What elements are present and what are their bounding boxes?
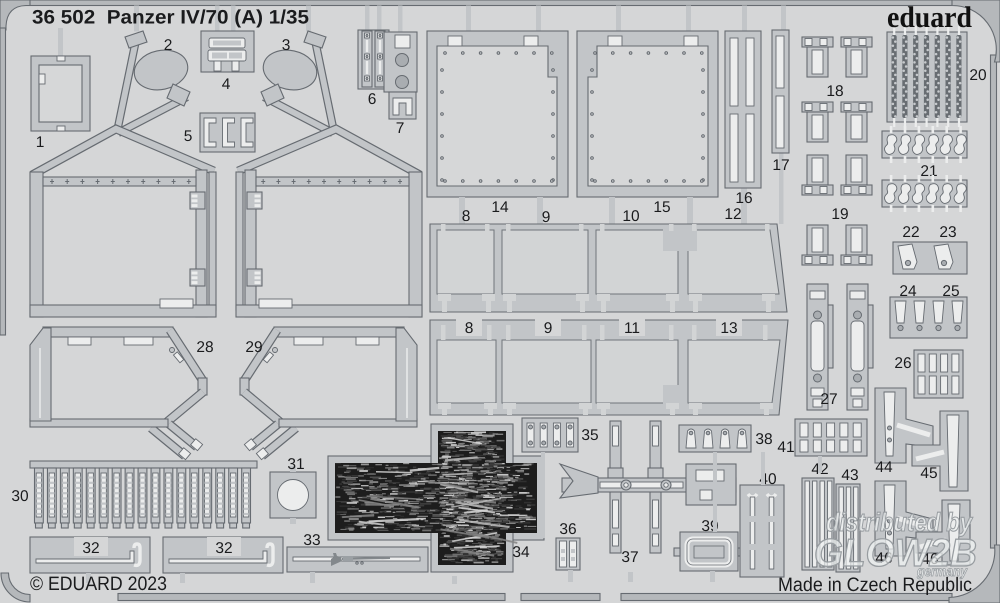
svg-text:18: 18: [826, 83, 843, 100]
svg-text:41: 41: [777, 439, 794, 456]
svg-text:21: 21: [920, 163, 937, 180]
svg-text:8: 8: [465, 320, 474, 337]
svg-text:44: 44: [875, 459, 893, 476]
svg-text:17: 17: [772, 157, 789, 174]
svg-text:32: 32: [82, 540, 99, 557]
svg-text:29: 29: [245, 339, 262, 356]
svg-text:2: 2: [164, 37, 173, 54]
svg-text:4: 4: [222, 76, 231, 93]
svg-text:27: 27: [820, 391, 837, 408]
svg-text:43: 43: [841, 467, 858, 484]
svg-text:35: 35: [581, 427, 598, 444]
svg-text:© EDUARD 2023: © EDUARD 2023: [30, 573, 167, 595]
svg-text:36: 36: [559, 521, 576, 538]
svg-text:16: 16: [735, 190, 752, 207]
svg-text:32: 32: [215, 540, 232, 557]
svg-text:9: 9: [544, 320, 553, 337]
svg-text:15: 15: [653, 199, 670, 216]
svg-text:germany: germany: [916, 563, 968, 579]
svg-text:3: 3: [282, 37, 291, 54]
svg-text:11: 11: [624, 320, 640, 337]
svg-text:38: 38: [755, 431, 772, 448]
svg-text:30: 30: [11, 488, 29, 505]
svg-text:22: 22: [902, 224, 919, 241]
svg-text:14: 14: [491, 199, 509, 216]
svg-text:26: 26: [894, 355, 911, 372]
svg-text:10: 10: [622, 208, 640, 225]
svg-text:34: 34: [512, 544, 530, 561]
svg-text:1: 1: [36, 134, 45, 151]
svg-text:13: 13: [720, 320, 737, 337]
svg-text:37: 37: [621, 549, 638, 566]
svg-text:8: 8: [462, 208, 471, 225]
svg-text:31: 31: [287, 456, 304, 473]
svg-text:20: 20: [969, 67, 987, 84]
svg-text:eduard: eduard: [887, 1, 972, 34]
svg-text:23: 23: [939, 224, 956, 241]
svg-text:12: 12: [724, 206, 741, 223]
svg-text:33: 33: [303, 532, 320, 549]
svg-text:28: 28: [196, 339, 213, 356]
svg-text:19: 19: [831, 206, 848, 223]
svg-text:6: 6: [368, 91, 377, 108]
svg-text:45: 45: [920, 465, 937, 482]
svg-text:5: 5: [184, 128, 193, 145]
svg-text:36 502 Panzer IV/70 (A) 1/35: 36 502 Panzer IV/70 (A) 1/35: [32, 7, 309, 29]
svg-text:7: 7: [396, 120, 405, 137]
